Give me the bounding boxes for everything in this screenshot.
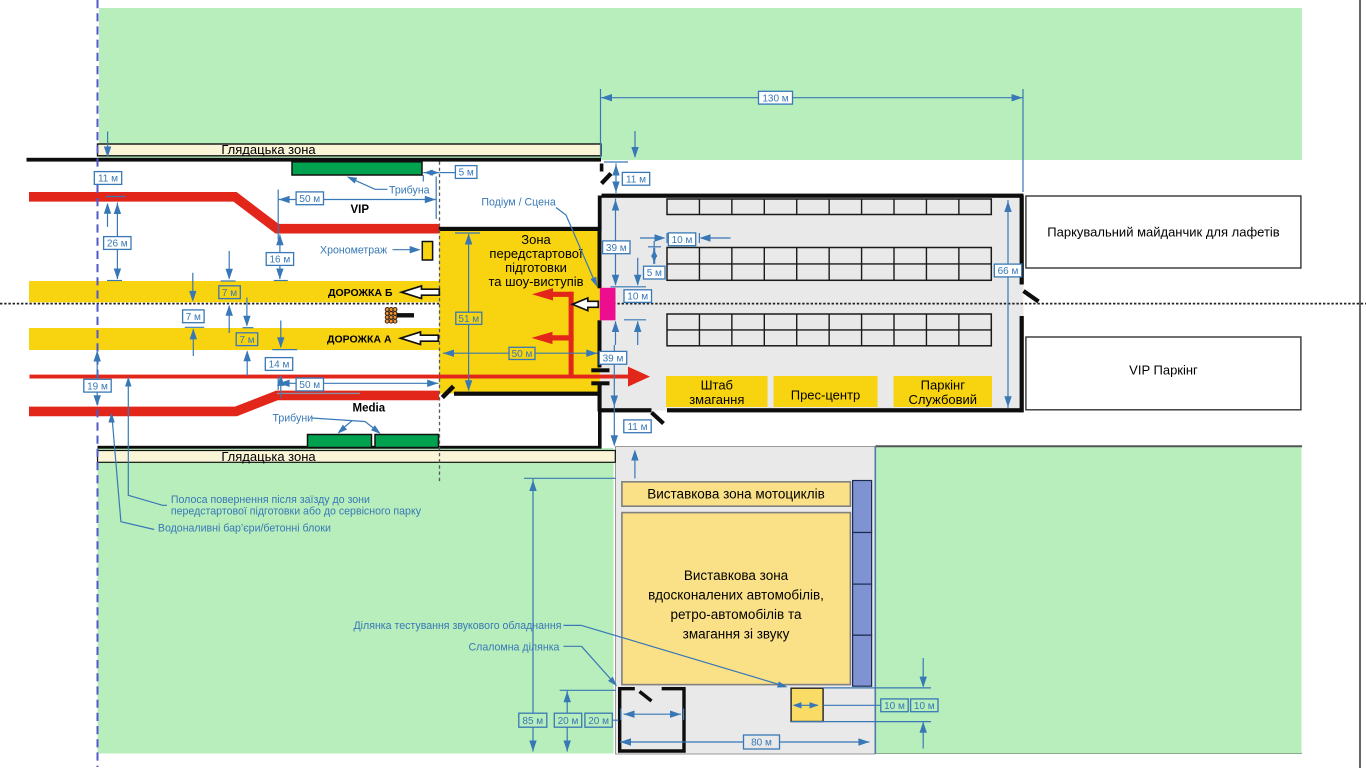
svg-text:передстартової підготовки або: передстартової підготовки або до сервісн… bbox=[171, 506, 422, 518]
svg-text:Хронометраж: Хронометраж bbox=[320, 245, 388, 257]
svg-text:Media: Media bbox=[353, 403, 386, 415]
svg-text:Паркувальний майданчик для лаф: Паркувальний майданчик для лафетів bbox=[1047, 225, 1280, 240]
svg-text:20 м: 20 м bbox=[588, 716, 609, 727]
svg-text:Подіум / Сцена: Подіум / Сцена bbox=[481, 196, 555, 208]
svg-text:14 м: 14 м bbox=[269, 360, 290, 371]
svg-text:Глядацька зона: Глядацька зона bbox=[221, 142, 316, 157]
svg-text:80 м: 80 м bbox=[751, 738, 772, 749]
svg-text:ДОРОЖКА А: ДОРОЖКА А bbox=[327, 334, 392, 346]
svg-text:Штаб: Штаб bbox=[701, 378, 733, 393]
svg-text:ретро-автомобілів та: ретро-автомобілів та bbox=[670, 607, 802, 622]
svg-text:7 м: 7 м bbox=[239, 335, 254, 346]
svg-text:змагання: змагання bbox=[689, 392, 744, 407]
svg-text:10 м: 10 м bbox=[672, 235, 693, 246]
svg-text:51 м: 51 м bbox=[458, 314, 479, 325]
svg-text:Виставкова зона: Виставкова зона bbox=[684, 568, 789, 583]
svg-text:19 м: 19 м bbox=[87, 381, 108, 392]
svg-text:Водоналивні бар’єри/бетонні бл: Водоналивні бар’єри/бетонні блоки bbox=[158, 523, 331, 535]
svg-text:26 м: 26 м bbox=[107, 239, 128, 250]
svg-text:7 м: 7 м bbox=[186, 312, 201, 323]
svg-text:Службовий: Службовий bbox=[909, 392, 978, 407]
svg-text:5 м: 5 м bbox=[647, 268, 662, 279]
svg-text:10 м: 10 м bbox=[884, 701, 905, 712]
svg-text:10 м: 10 м bbox=[914, 701, 935, 712]
svg-text:передстартової: передстартової bbox=[489, 246, 583, 261]
svg-text:Прес-центр: Прес-центр bbox=[791, 388, 861, 403]
svg-text:змагання зі звуку: змагання зі звуку bbox=[683, 627, 790, 642]
svg-text:Глядацька зона: Глядацька зона bbox=[221, 449, 316, 464]
svg-text:Трибуна: Трибуна bbox=[389, 184, 430, 196]
svg-text:85 м: 85 м bbox=[522, 716, 543, 727]
svg-text:підготовки: підготовки bbox=[505, 260, 567, 275]
svg-text:VIP: VIP bbox=[351, 204, 370, 216]
svg-text:5 м: 5 м bbox=[459, 168, 474, 179]
svg-text:11 м: 11 м bbox=[98, 174, 118, 185]
svg-text:Слаломна ділянка: Слаломна ділянка bbox=[469, 642, 560, 654]
svg-text:50 м: 50 м bbox=[299, 194, 320, 205]
svg-text:Ділянка тестування звукового о: Ділянка тестування звукового обладнання bbox=[354, 620, 562, 632]
svg-text:66 м: 66 м bbox=[998, 266, 1019, 277]
svg-text:16 м: 16 м bbox=[270, 255, 291, 266]
svg-text:VIP Паркінг: VIP Паркінг bbox=[1129, 363, 1198, 378]
svg-text:50 м: 50 м bbox=[299, 380, 320, 391]
svg-text:39 м: 39 м bbox=[606, 243, 627, 254]
svg-text:Трибуни: Трибуни bbox=[273, 412, 314, 424]
svg-text:50 м: 50 м bbox=[512, 349, 533, 360]
svg-text:11 м: 11 м bbox=[626, 174, 646, 185]
svg-text:Виставкова зона мотоциклів: Виставкова зона мотоциклів bbox=[647, 487, 825, 502]
svg-text:Полоса повернення після заїзду: Полоса повернення після заїзду до зони bbox=[171, 494, 370, 506]
svg-text:та шоу-виступів: та шоу-виступів bbox=[488, 274, 583, 289]
svg-text:Зона: Зона bbox=[521, 232, 551, 247]
svg-text:11 м: 11 м bbox=[627, 422, 647, 433]
svg-text:вдосконалених автомобілів,: вдосконалених автомобілів, bbox=[648, 588, 824, 603]
svg-text:7 м: 7 м bbox=[222, 288, 237, 299]
svg-text:Паркінг: Паркінг bbox=[921, 378, 966, 393]
svg-text:ДОРОЖКА Б: ДОРОЖКА Б bbox=[328, 287, 393, 299]
svg-text:10 м: 10 м bbox=[627, 292, 648, 303]
svg-text:130 м: 130 м bbox=[762, 93, 788, 104]
svg-text:20 м: 20 м bbox=[558, 716, 579, 727]
svg-text:39 м: 39 м bbox=[603, 353, 624, 364]
